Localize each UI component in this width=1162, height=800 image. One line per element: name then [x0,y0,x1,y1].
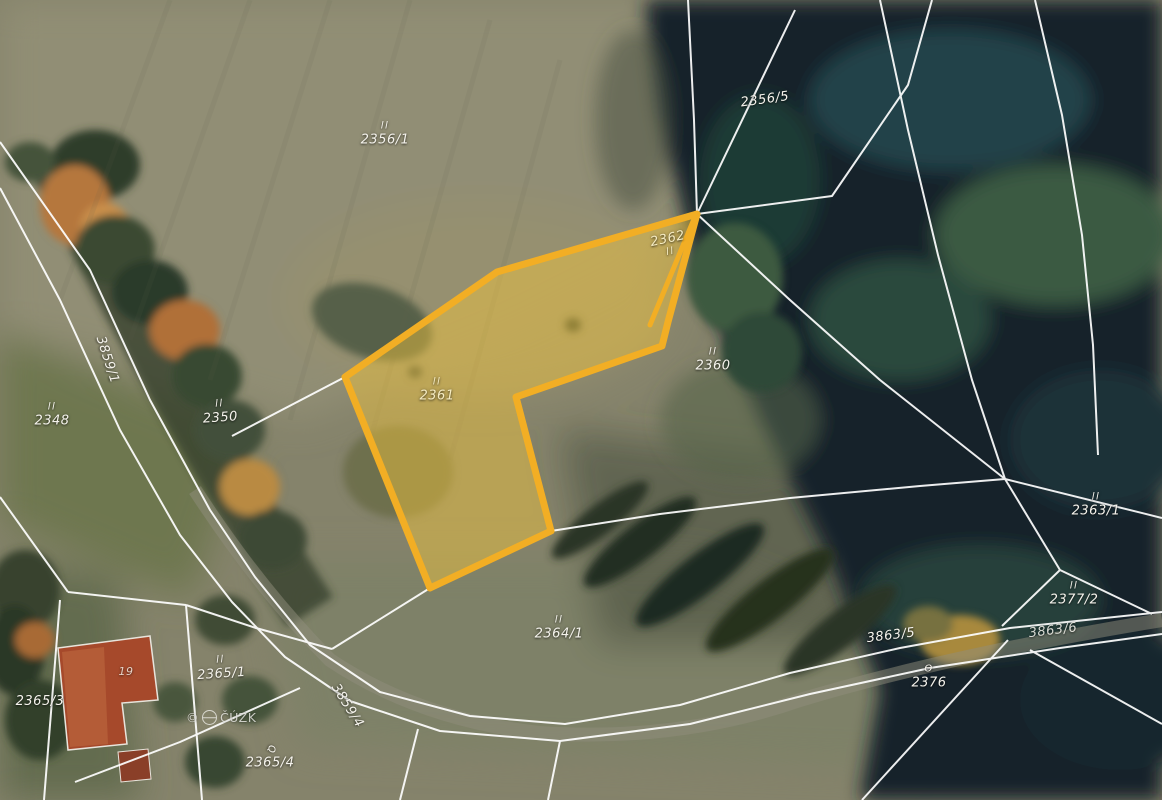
cadastral-map[interactable]: ll 2356/1 2356/5 ll 2362 ll 2361 ll 2360… [0,0,1162,800]
attribution-text: ČÚZK [220,710,256,725]
copyright-symbol: © [186,710,199,725]
aerial-imagery [0,0,1162,800]
attribution: © ČÚZK [186,710,256,725]
cuzk-logo-icon [202,710,217,725]
map-canvas [0,0,1162,800]
